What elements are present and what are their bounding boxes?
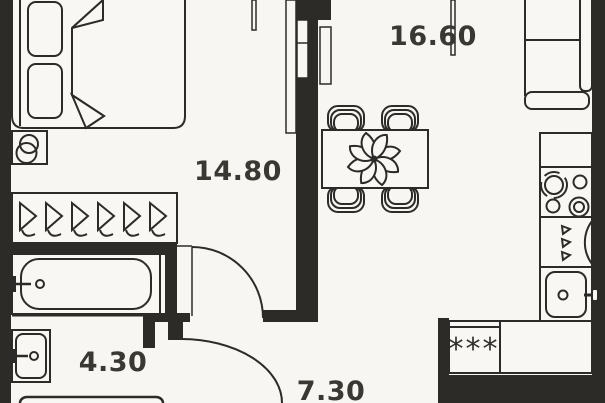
wall-bathroom-east [165,255,177,313]
toilet-cutoff [20,397,163,403]
pillow-top [28,2,62,56]
washing-machine-symbol: *** [449,332,500,367]
wall-kitchen-stub [438,318,449,378]
label-bedroom-area: 14.80 [194,156,282,187]
bedroom-furniture [12,0,185,243]
pocket-door-slot [297,20,308,78]
floorplan: *** 16.60 14.80 4.30 7.30 [0,0,605,403]
window-line-bedroom [252,0,256,30]
wall-left [0,0,11,403]
wall-right [592,0,605,403]
sliding-panel-living [320,27,331,84]
label-hallway-area: 7.30 [297,376,366,403]
wall-bottom-right [438,375,605,403]
sofa [525,0,592,109]
label-living-kitchen-area: 16.60 [389,21,477,52]
wardrobe [12,193,177,243]
sofa-backrest [580,0,592,91]
pillow-bottom [28,64,62,118]
floorplan-svg: *** 16.60 14.80 4.30 7.30 [0,0,605,403]
sliding-panel-bedroom [286,0,296,133]
kitchen-counter-bottom [500,321,592,373]
sofa-armrest [525,92,589,109]
bathtub [12,254,160,314]
wall-central-foot [263,310,318,322]
wall-hall-b [143,322,155,348]
sofa-seat [525,0,582,95]
wall-hall-entry-stub [168,322,183,340]
label-bathroom-area: 4.30 [79,347,148,378]
